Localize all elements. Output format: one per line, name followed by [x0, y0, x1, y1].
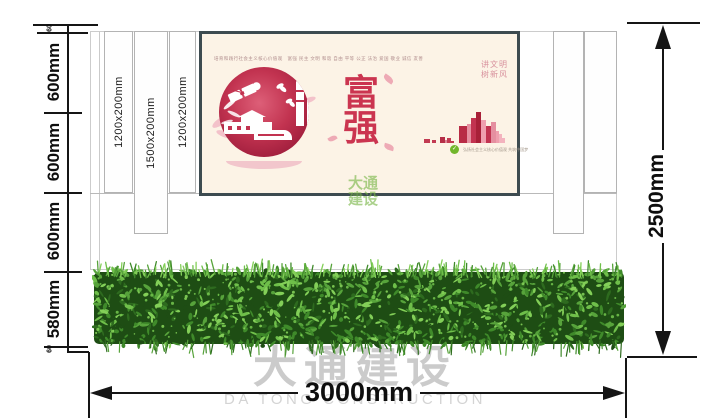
poster-footer-note: 弘扬社会主义核心价值观 共筑中国梦: [463, 147, 528, 153]
bottom-dim-line-left: [104, 392, 298, 394]
watermark-center: 大通 建设: [344, 176, 382, 208]
poster-main-characters: 富 强: [338, 76, 384, 146]
slat-label: 1200x200mm: [177, 76, 189, 148]
billboard-dimension-drawing: 1200x200mm 1500x200mm 1200x200mm 培育和践行社会…: [0, 0, 720, 420]
watermark-center-line2: 建设: [344, 192, 382, 208]
leaf-badge-icon: ✓: [450, 145, 459, 154]
skyline-bar: [459, 126, 467, 143]
dim-2500: 2500mm: [645, 154, 669, 238]
poster-slogan: 讲文明 树新风: [481, 60, 508, 80]
left-dim-tick: [44, 192, 82, 194]
left-dim-tick: [37, 32, 88, 34]
skyline-bar: [451, 141, 454, 143]
slat-1200-right: 1200x200mm: [169, 31, 196, 193]
slat-label: 1200x200mm: [113, 76, 125, 148]
dim-580: 580mm: [44, 280, 64, 339]
dim-600-1: 600mm: [44, 43, 64, 102]
slat-1500: 1500x200mm: [134, 31, 168, 234]
slat-right-long: [553, 31, 584, 234]
bottom-dim-line-right: [420, 392, 612, 394]
dim-600-3: 600mm: [44, 202, 64, 261]
slat-label: 1500x200mm: [145, 97, 157, 169]
dim-60-bottom: 60: [47, 345, 54, 353]
slat-right-edge: [584, 31, 617, 193]
arrow-down-icon: [655, 331, 671, 355]
hedge-graphic: [92, 258, 626, 360]
leaf-decor-icon: [383, 143, 394, 151]
slat-1200-left: 1200x200mm: [104, 31, 133, 193]
left-dim-tick: [33, 24, 98, 26]
arrow-right-icon: [603, 386, 625, 400]
skyline-bar: [502, 138, 505, 143]
dim-60-top: 60: [47, 24, 54, 32]
left-post-line: [99, 31, 100, 269]
slogan-line-2: 树新风: [481, 70, 508, 80]
arrow-left-icon: [90, 386, 112, 400]
skyline-bar: [432, 140, 436, 143]
city-skyline-graphic: [424, 105, 510, 143]
poster-lightbox: 培育和践行社会主义核心价值观 富强 民主 文明 和谐 自由 平等 公正 法治 爱…: [199, 31, 520, 196]
leaf-decor-icon: [327, 134, 337, 143]
left-dim-line: [67, 24, 69, 352]
slogan-line-1: 讲文明: [481, 60, 508, 70]
left-dim-corner: [67, 351, 89, 353]
bottom-ext-right: [625, 358, 627, 418]
left-dim-tick: [44, 112, 82, 114]
watermark-center-line1: 大通: [344, 176, 382, 192]
dim-3000: 3000mm: [296, 377, 422, 408]
right-dim-top-tick: [627, 22, 700, 24]
dim-600-2: 600mm: [44, 123, 64, 182]
right-dim-line-lower: [662, 243, 664, 343]
right-dim-bottom-tick: [627, 356, 697, 358]
char-fu: 富: [338, 76, 384, 111]
leaf-decor-icon: [382, 73, 394, 84]
left-dim-tick: [44, 271, 82, 273]
papercut-emblem: [210, 60, 320, 176]
char-qiang: 强: [338, 111, 384, 146]
bottom-ext-left: [88, 352, 90, 418]
right-dim-line-upper: [662, 40, 664, 150]
skyline-bar: [424, 139, 430, 143]
arrow-up-icon: [655, 25, 671, 49]
